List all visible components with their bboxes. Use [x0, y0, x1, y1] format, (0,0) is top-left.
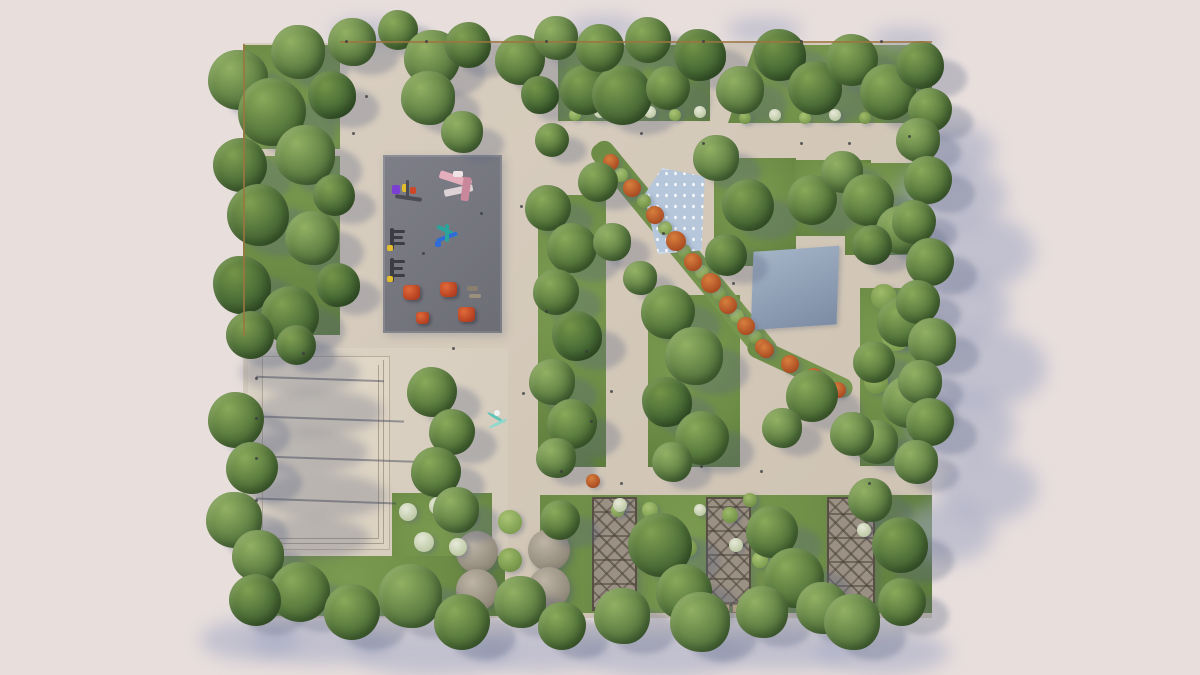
tree [906, 238, 954, 286]
flowering-shrub [613, 498, 627, 512]
person-dot [702, 142, 705, 145]
autumn-shrub [623, 179, 641, 197]
person-dot [640, 132, 643, 135]
tree [592, 65, 652, 125]
tree [665, 327, 723, 385]
autumn-shrub [737, 317, 755, 335]
tree [271, 25, 325, 79]
tree [208, 392, 264, 448]
shrub [743, 493, 757, 507]
person-dot [452, 347, 455, 350]
lamp-post-dot [255, 499, 258, 502]
climbing-boulder [416, 312, 429, 324]
person-dot [908, 135, 911, 138]
climbing-boulder [440, 282, 457, 297]
autumn-shrub [666, 231, 686, 251]
tree [285, 211, 339, 265]
shrub [498, 548, 522, 572]
play-equipment [435, 241, 441, 247]
person-dot [545, 310, 548, 313]
play-equipment [460, 177, 471, 202]
tree [576, 24, 624, 72]
tree [324, 584, 380, 640]
person-dot [522, 392, 525, 395]
play-equipment [392, 236, 403, 239]
play-equipment [387, 276, 393, 282]
autumn-shrub [781, 355, 799, 373]
person-dot [620, 482, 623, 485]
person-dot [662, 232, 665, 235]
boundary-fence [340, 41, 932, 43]
shrub [498, 510, 522, 534]
tree [762, 408, 802, 448]
tree [378, 564, 442, 628]
person-dot [800, 142, 803, 145]
tree [830, 412, 874, 456]
person-dot [302, 352, 305, 355]
autumn-shrub [758, 342, 774, 358]
tree [534, 16, 578, 60]
person-dot [868, 482, 871, 485]
flowering-shrub [769, 109, 781, 121]
flowering-shrub [414, 532, 434, 552]
lamp-post-dot [880, 40, 883, 43]
autumn-shrub [719, 296, 737, 314]
lamp-post-dot [255, 377, 258, 380]
tree [625, 17, 671, 63]
tree [852, 225, 892, 265]
play-equipment [392, 274, 405, 277]
tree [623, 261, 657, 295]
flowering-shrub [449, 538, 467, 556]
person-dot [732, 282, 735, 285]
person-dot [585, 350, 588, 353]
tree [226, 311, 274, 359]
tree [674, 29, 726, 81]
tree [433, 487, 479, 533]
shrub [722, 507, 738, 523]
tree [693, 135, 739, 181]
person-dot [590, 420, 593, 423]
autumn-shrub [684, 253, 702, 271]
lamp-post-dot [800, 40, 803, 43]
play-equipment [392, 242, 405, 245]
tree [313, 174, 355, 216]
lamp-post-dot [545, 40, 548, 43]
tree [594, 588, 650, 644]
tree [908, 318, 956, 366]
play-equipment [406, 180, 409, 200]
tree [898, 360, 942, 404]
play-equipment [392, 230, 405, 233]
play-equipment [469, 294, 481, 298]
autumn-shrub [646, 206, 664, 224]
lamp-post-dot [425, 40, 428, 43]
lamp-post-dot [702, 40, 705, 43]
person-dot [480, 212, 483, 215]
tree [533, 269, 579, 315]
lamp-post-dot [255, 417, 258, 420]
tree [445, 22, 491, 68]
climbing-boulder [458, 307, 475, 322]
tree [536, 438, 576, 478]
tree [578, 162, 618, 202]
tree [538, 602, 586, 650]
person-dot [760, 470, 763, 473]
play-equipment [392, 267, 403, 270]
tree [670, 592, 730, 652]
tree [896, 41, 944, 89]
flowering-shrub [729, 538, 743, 552]
tree [434, 594, 490, 650]
tree [904, 156, 952, 204]
tree [540, 500, 580, 540]
play-equipment [392, 185, 400, 194]
tree [872, 517, 928, 573]
tree [878, 578, 926, 626]
play-equipment [445, 224, 449, 242]
tree [276, 325, 316, 365]
tree [894, 440, 938, 484]
tree [722, 179, 774, 231]
flowering-shrub [829, 109, 841, 121]
flowering-shrub [399, 503, 417, 521]
play-equipment [392, 260, 405, 263]
play-equipment [410, 187, 416, 194]
tree [441, 111, 483, 153]
playground-surface [383, 155, 502, 333]
shrub [669, 109, 681, 121]
play-equipment [453, 171, 463, 177]
tree [226, 442, 278, 494]
autumn-shrub [586, 474, 600, 488]
boundary-fence [243, 44, 245, 336]
person-dot [365, 95, 368, 98]
tree [552, 311, 602, 361]
tree [652, 442, 692, 482]
park-aerial-render [0, 0, 1200, 675]
person-dot [520, 205, 523, 208]
play-equipment [467, 286, 478, 291]
tree [906, 398, 954, 446]
tree [716, 66, 764, 114]
lamp-post-dot [255, 457, 258, 460]
climbing-boulder [403, 285, 420, 300]
tree [521, 76, 559, 114]
tree [229, 574, 281, 626]
tree [853, 341, 895, 383]
tree [593, 223, 631, 261]
play-equipment [387, 245, 393, 251]
person-dot [560, 470, 563, 473]
tree [535, 123, 569, 157]
shrub [637, 194, 651, 208]
tree [308, 71, 356, 119]
tree [316, 263, 360, 307]
flowering-shrub [694, 106, 706, 118]
tree [736, 586, 788, 638]
flowering-shrub [857, 523, 871, 537]
tree [896, 118, 940, 162]
lamp-post-dot [345, 40, 348, 43]
person-dot [700, 465, 703, 468]
sculpture-part [494, 410, 500, 416]
flowering-shrub [694, 504, 706, 516]
autumn-shrub [701, 273, 721, 293]
tree [227, 184, 289, 246]
person-dot [610, 390, 613, 393]
person-dot [422, 252, 425, 255]
person-dot [352, 132, 355, 135]
tree [705, 234, 747, 276]
person-dot [848, 142, 851, 145]
tree [547, 223, 597, 273]
tree [824, 594, 880, 650]
art-sculpture [486, 408, 508, 434]
